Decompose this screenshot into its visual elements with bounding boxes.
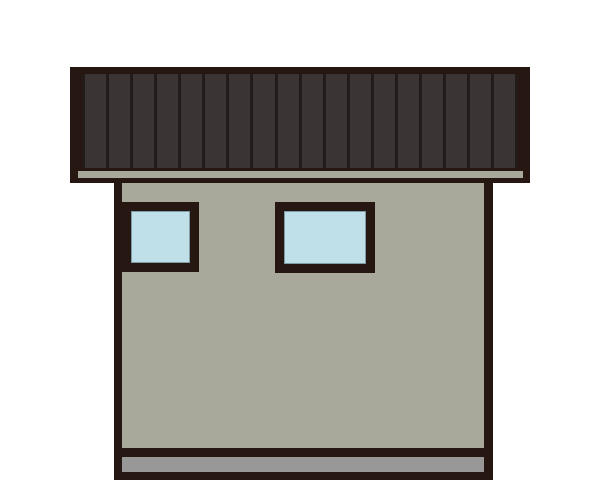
roof-slat [130,74,154,168]
roof-slat [250,74,274,168]
roof-slat [82,74,106,168]
window-left-glass [131,211,190,263]
roof-slats [82,74,518,168]
roof-slat [299,74,323,168]
house-illustration [0,0,600,480]
roof-slat [323,74,347,168]
roof-slat [275,74,299,168]
window-right [275,202,375,273]
roof-slat [395,74,419,168]
window-right-glass [284,211,366,264]
fascia-board [78,171,523,178]
roof-slat [154,74,178,168]
roof-slat [347,74,371,168]
roof-slat [467,74,491,168]
roof-slat [202,74,226,168]
roof-slat [491,74,515,168]
roof [70,67,530,183]
window-left [122,202,199,272]
foundation-strip [122,457,484,472]
roof-slat [419,74,443,168]
roof-slat [226,74,250,168]
roof-slat [106,74,130,168]
roof-slat [371,74,395,168]
roof-slat [178,74,202,168]
roof-slat [443,74,467,168]
